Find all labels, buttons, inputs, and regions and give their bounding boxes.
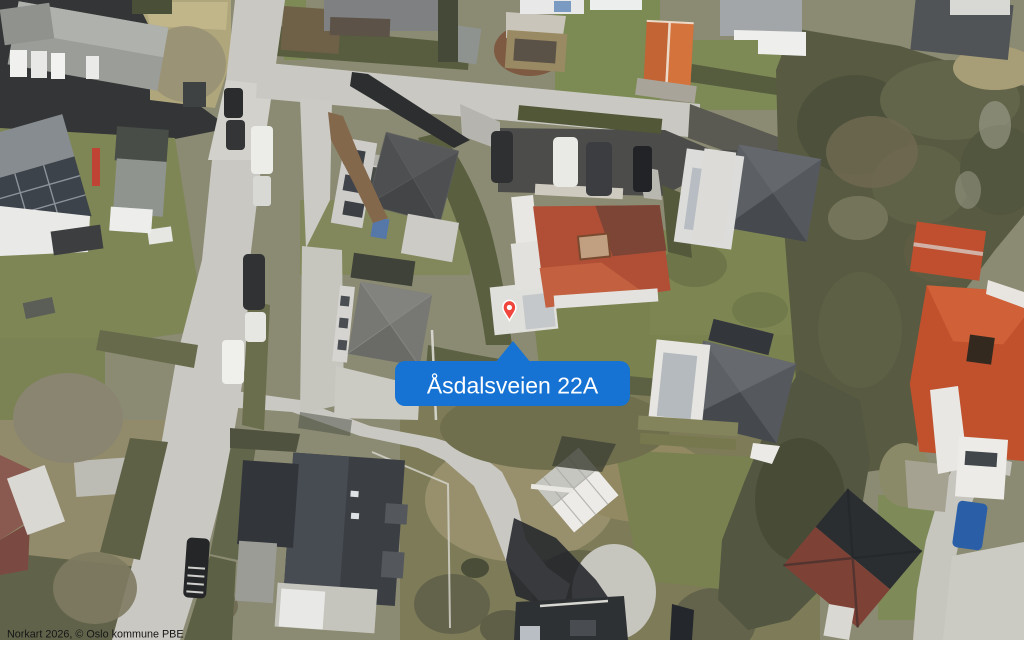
svg-text:Norkart 2026, © Oslo kommune P: Norkart 2026, © Oslo kommune PBE bbox=[7, 629, 184, 641]
svg-text:Åsdalsveien 22A: Åsdalsveien 22A bbox=[427, 372, 599, 399]
